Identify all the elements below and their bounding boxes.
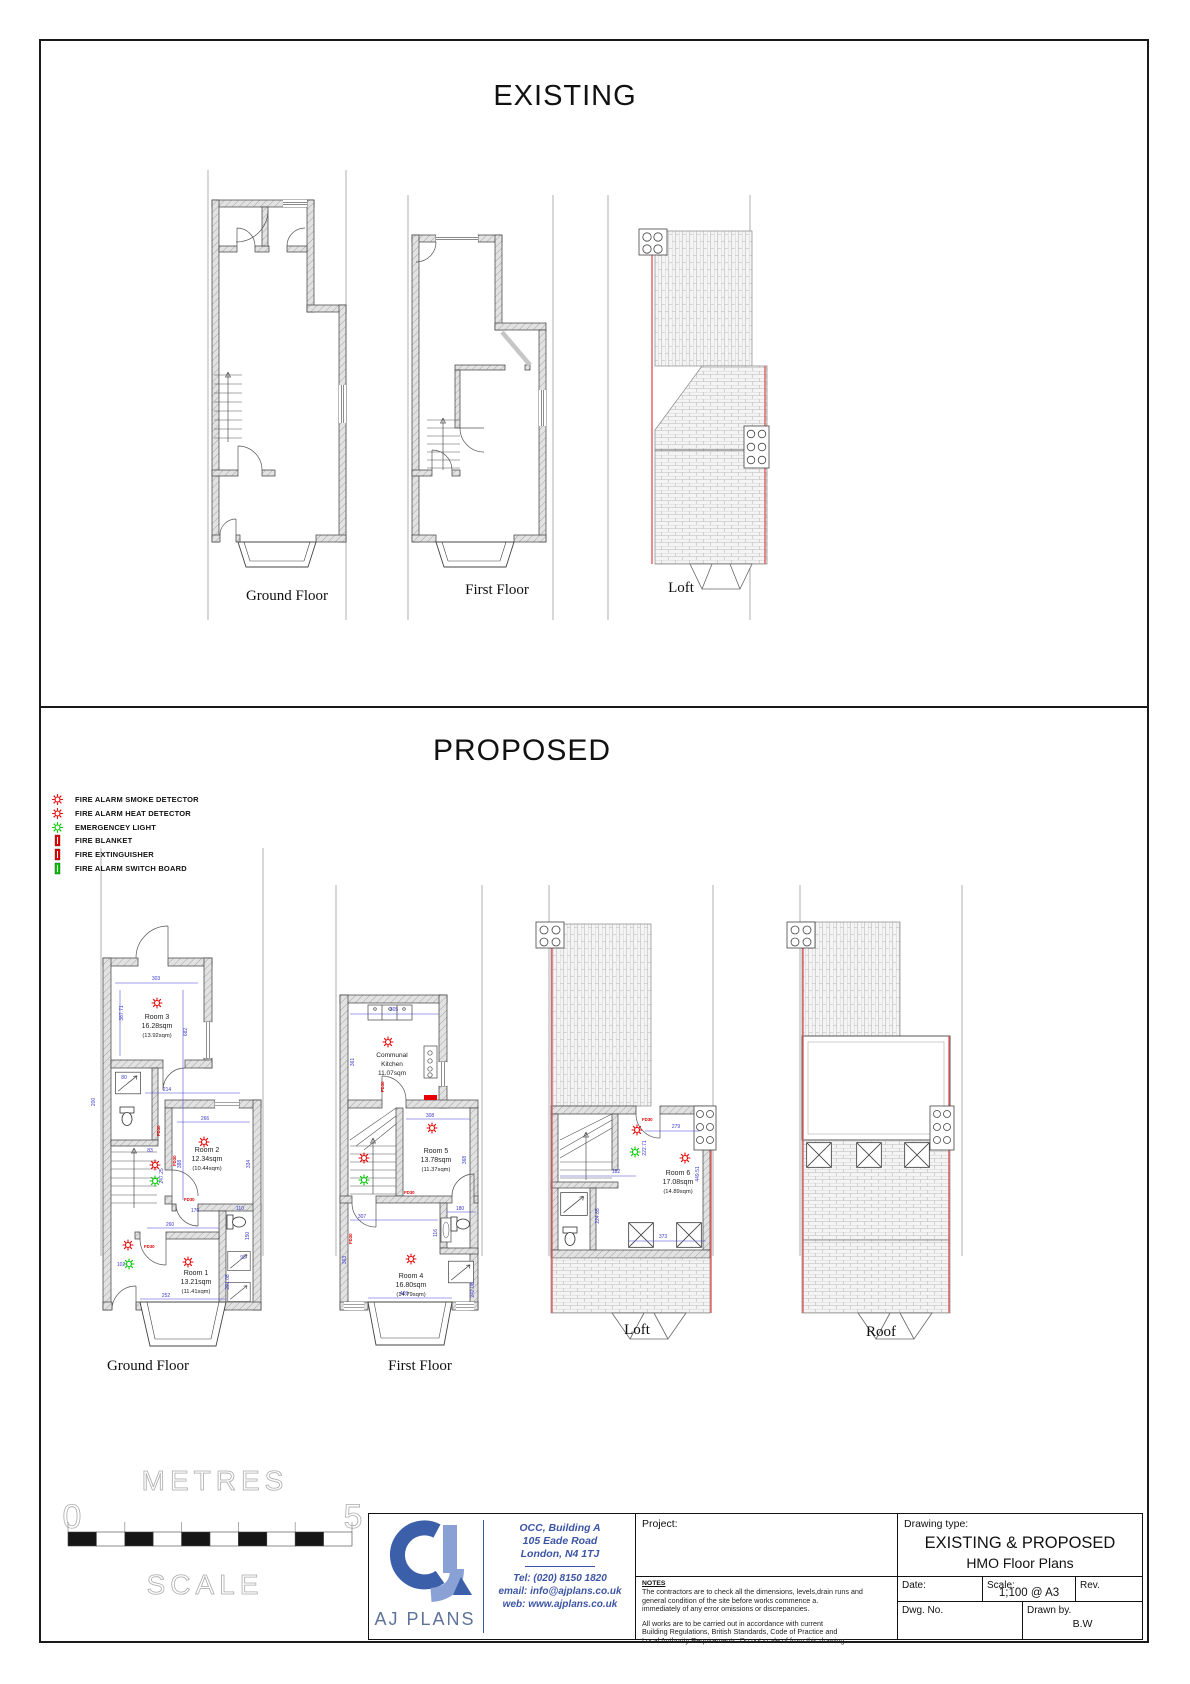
project-label: Project: <box>642 1518 678 1530</box>
notes-section: NOTES The contractors are to check all t… <box>636 1576 897 1639</box>
svg-text:13.21sqm: 13.21sqm <box>181 1279 212 1286</box>
legend-label: EMERGENCEY LIGHT <box>75 823 156 832</box>
toilet <box>227 1215 246 1229</box>
legend-item: FIRE ALARM SWITCH BOARD <box>50 861 199 875</box>
company-name: AJ PLANS <box>371 1609 479 1630</box>
proposed-roof-plan <box>787 885 962 1339</box>
proposed-loft-plan: FD30 279 449.51 182 222.71 224.85 373 Ro… <box>536 885 716 1339</box>
legend-label: FIRE BLANKET <box>75 836 132 845</box>
rooflight <box>905 1143 930 1168</box>
rooflight <box>807 1143 832 1168</box>
window <box>436 235 546 426</box>
logo-divider <box>483 1520 484 1633</box>
email-line: email: info@ajplans.co.uk <box>489 1585 631 1598</box>
svg-text:FD30: FD30 <box>642 1117 653 1122</box>
smoke-detector-icon <box>183 1257 194 1268</box>
svg-text:307: 307 <box>358 1214 367 1220</box>
drawing-type-line2: HMO Floor Plans <box>898 1555 1142 1571</box>
smoke-detector-icon <box>199 1137 210 1148</box>
address-line: London, N4 1TJ <box>489 1548 631 1561</box>
shower <box>228 1251 250 1270</box>
rev-cell: Rev. <box>1076 1577 1142 1601</box>
legend-item: FIRE EXTINGUISHER <box>50 848 199 862</box>
svg-text:Room 6: Room 6 <box>666 1170 691 1177</box>
scale-cell: Scale: 1;100 @ A3 <box>983 1577 1076 1601</box>
bay-window <box>436 542 514 567</box>
fire-safety-legend: FIRE ALARM SMOKE DETECTOR FIRE ALARM HEA… <box>50 793 199 875</box>
svg-text:83: 83 <box>147 1148 153 1154</box>
proposed-first-floor-label: First Floor <box>388 1358 452 1375</box>
chimney <box>930 1106 954 1150</box>
legend-label: FIRE ALARM HEAT DETECTOR <box>75 809 191 818</box>
bath-fixtures <box>441 1218 451 1242</box>
proposed-first-floor-plan: FD30 FD30 FD30 305 361 308 368 307 363 1… <box>336 885 482 1345</box>
smoke-detector-icon <box>406 1254 417 1265</box>
drawn-by-label: Drawn by. <box>1027 1605 1071 1616</box>
svg-text:368: 368 <box>462 1156 468 1165</box>
svg-text:(14.89sqm): (14.89sqm) <box>663 1189 692 1195</box>
svg-text:(10.44sqm): (10.44sqm) <box>192 1166 221 1172</box>
legend-label: FIRE EXTINGUISHER <box>75 850 154 859</box>
phone-line: Tel: (020) 8150 1820 <box>489 1572 631 1585</box>
svg-text:Kitchen: Kitchen <box>381 1061 403 1068</box>
svg-text:FD30: FD30 <box>380 1081 385 1092</box>
scale-five-label: 5 <box>344 1498 363 1536</box>
legend-item: EMERGENCEY LIGHT <box>50 820 199 834</box>
svg-text:373: 373 <box>659 1234 668 1240</box>
svg-text:FD30: FD30 <box>156 1125 161 1136</box>
fire-blanket-icon <box>50 834 64 847</box>
toilet <box>451 1217 470 1231</box>
svg-text:17.08sqm: 17.08sqm <box>663 1179 694 1186</box>
svg-text:334: 334 <box>246 1160 252 1169</box>
scale-zero-label: 0 <box>63 1498 82 1536</box>
notes-line: Local Authority Requirements. Do not sca… <box>642 1637 891 1646</box>
svg-text:Room 5: Room 5 <box>424 1148 449 1155</box>
svg-text:252: 252 <box>162 1293 171 1299</box>
svg-text:FD30: FD30 <box>144 1244 155 1249</box>
stairs <box>560 1114 612 1180</box>
dwg-no-label: Dwg. No. <box>902 1605 943 1616</box>
toilet <box>120 1107 134 1126</box>
bay-window <box>140 1302 226 1346</box>
address-line: 105 Eade Road <box>489 1535 631 1548</box>
shower <box>115 1072 140 1094</box>
fire-door-labels: FD30 <box>642 1117 653 1122</box>
svg-text:308: 308 <box>426 1113 435 1119</box>
smoke-detector-icon <box>152 998 163 1009</box>
smoke-detector-icon <box>680 1153 691 1164</box>
scale-value: 1;100 @ A3 <box>983 1587 1075 1599</box>
title-block-drawing-cell: Drawing type: EXISTING & PROPOSED HMO Fl… <box>898 1514 1142 1639</box>
legend-item: FIRE BLANKET <box>50 834 199 848</box>
proposed-section-title: PROPOSED <box>433 734 611 768</box>
svg-text:13.78sqm: 13.78sqm <box>421 1157 452 1164</box>
notes-title: NOTES <box>642 1580 891 1587</box>
svg-text:11.07sqm: 11.07sqm <box>378 1070 406 1077</box>
emergency-light-icon <box>124 1259 135 1270</box>
svg-text:305: 305 <box>390 1007 399 1013</box>
svg-text:388: 388 <box>177 1160 183 1169</box>
svg-text:242.08: 242.08 <box>470 1282 476 1298</box>
svg-text:16.80sqm: 16.80sqm <box>396 1282 427 1289</box>
room-labels: Room 6 17.08sqm (14.89sqm) <box>663 1170 694 1195</box>
svg-text:FD30: FD30 <box>348 1233 353 1244</box>
emergency-light-icon <box>630 1147 641 1158</box>
fire-alarm-switch-board-icon <box>50 862 64 875</box>
fire-extinguisher-icon <box>50 848 64 861</box>
door-arcs <box>220 210 305 535</box>
svg-text:214: 214 <box>163 1087 172 1093</box>
existing-ground-floor-label: Ground Floor <box>246 588 328 605</box>
svg-text:12.34sqm: 12.34sqm <box>192 1156 223 1163</box>
rooflight <box>629 1223 654 1248</box>
svg-text:182: 182 <box>612 1169 621 1175</box>
smoke-detector-icon <box>383 1037 394 1048</box>
chimney <box>787 922 815 948</box>
fire-blanket <box>424 1095 437 1100</box>
svg-text:303: 303 <box>152 976 161 982</box>
aj-plans-logo <box>377 1519 481 1607</box>
scale-bar: METRES 0 5 SCALE <box>63 1465 363 1600</box>
date-label: Date: <box>902 1580 926 1591</box>
shower <box>561 1193 588 1216</box>
legend-item: FIRE ALARM SMOKE DETECTOR <box>50 793 199 807</box>
svg-text:116: 116 <box>433 1229 439 1237</box>
svg-text:102: 102 <box>117 1262 126 1268</box>
smoke-detector-icon <box>427 1123 438 1134</box>
address-separator <box>525 1566 595 1567</box>
chimney <box>744 426 769 468</box>
smoke-detector-icon <box>359 1153 370 1164</box>
svg-text:95: 95 <box>240 1255 246 1261</box>
proposed-ground-floor-label: Ground Floor <box>107 1358 189 1375</box>
existing-section-title: EXISTING <box>493 80 636 113</box>
svg-text:247.25: 247.25 <box>159 1168 165 1184</box>
svg-text:260: 260 <box>166 1222 175 1228</box>
svg-text:(11.41sqm): (11.41sqm) <box>182 1289 211 1295</box>
title-block-company-cell: AJ PLANS OCC, Building A 105 Eade Road L… <box>369 1514 636 1639</box>
chimney <box>694 1106 716 1150</box>
heat-detector-icon <box>50 807 64 820</box>
svg-text:222.71: 222.71 <box>642 1140 648 1156</box>
chimney <box>536 922 564 948</box>
svg-text:224.85: 224.85 <box>595 1208 601 1224</box>
title-block: AJ PLANS OCC, Building A 105 Eade Road L… <box>368 1513 1143 1640</box>
svg-text:FD30: FD30 <box>404 1190 415 1195</box>
smoke-detector-icon <box>632 1125 643 1136</box>
company-address: OCC, Building A 105 Eade Road London, N4… <box>489 1522 631 1611</box>
svg-text:Room 2: Room 2 <box>195 1147 220 1154</box>
toilet <box>563 1227 577 1246</box>
drawing-sheet: FD30 FD30 FD30 FD30 303 387.71 682 80 20… <box>0 0 1190 1684</box>
svg-text:Room 1: Room 1 <box>184 1270 209 1277</box>
drawing-type-line1: EXISTING & PROPOSED <box>898 1534 1142 1553</box>
date-cell: Date: <box>898 1577 983 1601</box>
svg-text:176: 176 <box>191 1208 200 1214</box>
svg-text:(13.92sqm): (13.92sqm) <box>142 1033 171 1039</box>
svg-text:682: 682 <box>183 1028 189 1037</box>
door-arcs <box>352 1076 474 1227</box>
svg-text:449.51: 449.51 <box>695 1166 701 1182</box>
svg-text:363: 363 <box>342 1256 348 1265</box>
legend-label: FIRE ALARM SMOKE DETECTOR <box>75 795 199 804</box>
rooflight <box>857 1143 882 1168</box>
svg-text:16.28sqm: 16.28sqm <box>142 1023 173 1030</box>
notes-line: immediately of any error omissions or di… <box>642 1605 891 1614</box>
svg-text:361: 361 <box>350 1058 356 1067</box>
dwg-no-cell: Dwg. No. <box>898 1602 1023 1639</box>
proposed-roof-label: Roof <box>866 1324 896 1341</box>
flat-roof <box>802 1036 950 1140</box>
scale-caption: SCALE <box>147 1569 264 1600</box>
svg-text:180: 180 <box>456 1206 465 1212</box>
svg-text:FD30: FD30 <box>184 1197 195 1202</box>
rev-label: Rev. <box>1080 1580 1100 1591</box>
chimney <box>639 229 667 255</box>
web-line: web: www.ajplans.co.uk <box>489 1598 631 1611</box>
dimension-lines <box>350 1014 476 1298</box>
svg-text:110: 110 <box>236 1206 244 1212</box>
existing-first-floor-plan <box>408 195 553 620</box>
svg-text:291.08: 291.08 <box>225 1274 231 1290</box>
existing-ground-floor-plan <box>208 170 346 620</box>
svg-text:279: 279 <box>672 1124 681 1130</box>
proposed-loft-label: Loft <box>624 1322 650 1339</box>
address-line: OCC, Building A <box>489 1522 631 1535</box>
svg-text:150: 150 <box>245 1232 251 1241</box>
bay-window <box>238 542 316 567</box>
svg-text:200: 200 <box>91 1098 97 1107</box>
stairs <box>350 1108 396 1194</box>
existing-loft-label: Loft <box>668 580 694 597</box>
scale-units-label: METRES <box>142 1465 289 1496</box>
svg-text:(11.37sqm): (11.37sqm) <box>422 1167 451 1173</box>
existing-first-floor-label: First Floor <box>465 582 529 599</box>
title-block-meta-row: Date: Scale: 1;100 @ A3 Rev. <box>898 1576 1142 1601</box>
sheet-border <box>40 40 1148 1642</box>
svg-text:Room 3: Room 3 <box>145 1014 170 1021</box>
stairs <box>111 1148 157 1208</box>
emergency-light-icon <box>50 821 64 834</box>
svg-text:80: 80 <box>121 1075 127 1081</box>
proposed-ground-floor-plan: FD30 FD30 FD30 FD30 303 387.71 682 80 20… <box>91 848 263 1346</box>
emergency-light-icon <box>359 1175 370 1186</box>
bay-roof <box>690 564 752 589</box>
shower <box>228 1282 250 1301</box>
title-block-bottom-row: Dwg. No. Drawn by. B.W <box>898 1601 1142 1639</box>
svg-text:(14.79sqm): (14.79sqm) <box>396 1292 425 1298</box>
legend-item: FIRE ALARM HEAT DETECTOR <box>50 807 199 821</box>
svg-text:266: 266 <box>201 1116 210 1122</box>
drawn-by-cell: Drawn by. B.W <box>1023 1602 1142 1639</box>
svg-text:387.71: 387.71 <box>119 1005 125 1021</box>
shower <box>448 1261 473 1283</box>
drawing-type-label: Drawing type: <box>904 1518 968 1530</box>
smoke-detector-icon <box>50 793 64 806</box>
existing-loft-plan <box>608 195 769 620</box>
title-block-project-cell: Project: NOTES The contractors are to ch… <box>636 1514 898 1639</box>
rooflight <box>677 1223 702 1248</box>
svg-text:Room 4: Room 4 <box>399 1273 424 1280</box>
drawn-by-value: B.W <box>1023 1618 1142 1630</box>
smoke-detector-icon <box>123 1240 134 1251</box>
bay-window <box>368 1302 452 1345</box>
legend-label: FIRE ALARM SWITCH BOARD <box>75 864 187 873</box>
svg-text:Communal: Communal <box>376 1052 408 1059</box>
